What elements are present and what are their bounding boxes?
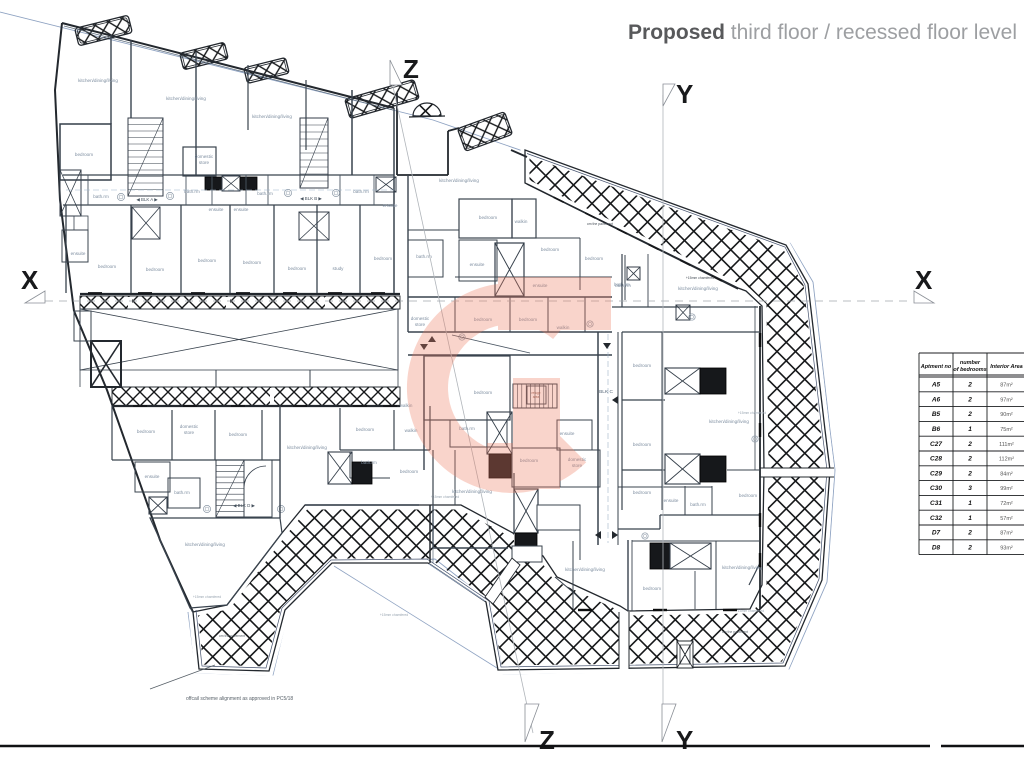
svg-text:B6: B6: [932, 426, 941, 433]
svg-text:D7: D7: [932, 530, 941, 537]
svg-text:C27: C27: [930, 441, 942, 448]
svg-text:bedroom: bedroom: [75, 152, 93, 157]
svg-text:store: store: [184, 430, 195, 435]
svg-text:112m²: 112m²: [999, 457, 1014, 463]
svg-text:ensuite: ensuite: [145, 474, 160, 479]
svg-text:bedroom: bedroom: [739, 493, 757, 498]
svg-text:bedroom: bedroom: [474, 390, 492, 395]
svg-text:bedroom: bedroom: [374, 256, 392, 261]
svg-text:bedroom: bedroom: [643, 586, 661, 591]
svg-text:bedroom: bedroom: [137, 429, 155, 434]
svg-text:bedroom: bedroom: [229, 432, 247, 437]
svg-text:bedroom: bedroom: [633, 363, 651, 368]
svg-text:75m²: 75m²: [1000, 427, 1013, 433]
svg-text:ensuite: ensuite: [470, 262, 485, 267]
svg-text:72m²: 72m²: [1000, 501, 1013, 507]
svg-text:2: 2: [967, 456, 972, 463]
svg-text:bedroom: bedroom: [288, 266, 306, 271]
svg-text:Z: Z: [539, 725, 555, 755]
svg-text:+15mm chamfered: +15mm chamfered: [686, 276, 714, 280]
svg-text:om the pavement: om the pavement: [722, 630, 748, 634]
svg-text:bedroom: bedroom: [98, 264, 116, 269]
svg-text:Proposed third floor / recesse: Proposed third floor / recessed floor le…: [628, 21, 1017, 44]
svg-text:kitchen/dining/living: kitchen/dining/living: [166, 96, 206, 101]
svg-text:store: store: [415, 322, 426, 327]
svg-text:bedroom: bedroom: [356, 427, 374, 432]
svg-text:number: number: [960, 360, 981, 366]
svg-text:kitchen/dining/living: kitchen/dining/living: [565, 567, 605, 572]
svg-text:kitchen/dining/living: kitchen/dining/living: [252, 114, 292, 119]
svg-text:bedroom: bedroom: [633, 490, 651, 495]
svg-text:om the pavement: om the pavement: [219, 634, 245, 638]
svg-text:84m²: 84m²: [1000, 471, 1013, 477]
svg-text:Y: Y: [676, 79, 693, 109]
svg-text:BLK C: BLK C: [599, 389, 613, 395]
svg-text:bedroom: bedroom: [633, 442, 651, 447]
svg-text:offcail scheme alignment as ap: offcail scheme alignment as approved in …: [186, 696, 293, 702]
svg-text:Y: Y: [676, 725, 693, 755]
svg-text:walkin: walkin: [515, 219, 528, 224]
svg-text:ensuite: ensuite: [560, 431, 575, 436]
svg-text:57m²: 57m²: [1000, 516, 1013, 522]
svg-text:111m²: 111m²: [999, 442, 1014, 448]
svg-text:2: 2: [967, 470, 972, 477]
svg-text:kitchen/dining/living: kitchen/dining/living: [185, 542, 225, 547]
svg-text:99m²: 99m²: [1000, 486, 1013, 492]
svg-text:bath.rm: bath.rm: [361, 460, 377, 465]
svg-text:87m²: 87m²: [1000, 383, 1013, 389]
svg-text:bedroom: bedroom: [146, 267, 164, 272]
svg-text:87m²: 87m²: [1000, 531, 1013, 537]
svg-text:domestic: domestic: [195, 154, 214, 159]
svg-text:90m²: 90m²: [1000, 412, 1013, 418]
svg-text:◀ BLK D ▶: ◀ BLK D ▶: [233, 503, 256, 508]
svg-text:bedroom: bedroom: [243, 260, 261, 265]
svg-text:domestic: domestic: [411, 316, 430, 321]
svg-text:C28: C28: [930, 456, 942, 463]
svg-text:om the pavement: om the pavement: [587, 222, 613, 226]
svg-text:bedroom: bedroom: [400, 469, 418, 474]
svg-text:X: X: [915, 265, 933, 295]
svg-text:1: 1: [968, 500, 972, 507]
svg-text:bath.rm: bath.rm: [174, 490, 190, 495]
svg-text:study: study: [333, 266, 345, 271]
svg-text:ensuite: ensuite: [234, 207, 249, 212]
svg-text:D8: D8: [932, 544, 941, 551]
svg-text:B5: B5: [932, 411, 941, 418]
svg-text:+15mm chamfered: +15mm chamfered: [193, 595, 221, 599]
svg-text:1: 1: [968, 515, 972, 522]
svg-text:kitchen/dining/living: kitchen/dining/living: [287, 445, 327, 450]
svg-text:2: 2: [967, 441, 972, 448]
svg-text:bedroom: bedroom: [479, 215, 497, 220]
svg-text:C31: C31: [930, 500, 942, 507]
svg-text:ensuite: ensuite: [71, 251, 86, 256]
svg-text:◀ BLK B ▶: ◀ BLK B ▶: [300, 196, 322, 201]
svg-text:domestic: domestic: [180, 424, 199, 429]
svg-text:A5: A5: [931, 382, 941, 389]
svg-text:3: 3: [968, 485, 972, 492]
svg-text:C29: C29: [930, 470, 942, 477]
svg-text:2: 2: [967, 544, 972, 551]
svg-text:bath.rm: bath.rm: [93, 194, 109, 199]
svg-text:bath.rm: bath.rm: [257, 191, 273, 196]
svg-text:bedroom: bedroom: [585, 256, 603, 261]
svg-text:bath.rm: bath.rm: [690, 502, 706, 507]
svg-text:store: store: [199, 160, 210, 165]
svg-text:+15mm chamfered: +15mm chamfered: [738, 411, 766, 415]
svg-text:of bedrooms: of bedrooms: [953, 367, 986, 373]
svg-text:C32: C32: [930, 515, 942, 522]
svg-text:2: 2: [967, 411, 972, 418]
svg-text:Z: Z: [403, 54, 419, 84]
svg-text:bedroom: bedroom: [198, 258, 216, 263]
svg-text:◀ BLK A ▶: ◀ BLK A ▶: [136, 197, 158, 202]
svg-text:kitchen/dining/living: kitchen/dining/living: [678, 286, 718, 291]
svg-text:kitchen/dining/living: kitchen/dining/living: [439, 178, 479, 183]
svg-text:X: X: [21, 265, 39, 295]
svg-text:2: 2: [967, 382, 972, 389]
svg-text:2: 2: [967, 396, 972, 403]
svg-text:bedroom: bedroom: [541, 247, 559, 252]
svg-text:ensuite: ensuite: [209, 207, 224, 212]
svg-text:97m²: 97m²: [1000, 397, 1013, 403]
svg-text:kitchen/dining/living: kitchen/dining/living: [78, 78, 118, 83]
svg-text:Aptment no: Aptment no: [920, 364, 952, 370]
svg-text:ensuite: ensuite: [664, 498, 679, 503]
svg-text:1: 1: [968, 426, 972, 433]
svg-text:+15mm chamfered: +15mm chamfered: [736, 609, 764, 613]
svg-text:+15mm chamfered: +15mm chamfered: [380, 613, 408, 617]
svg-text:C30: C30: [930, 485, 942, 492]
svg-text:kitchen/dining/living: kitchen/dining/living: [722, 565, 762, 570]
svg-text:kitchen/dining/living: kitchen/dining/living: [709, 419, 749, 424]
svg-text:ensuite: ensuite: [383, 203, 398, 208]
svg-text:93m²: 93m²: [1000, 545, 1013, 551]
svg-text:2: 2: [967, 530, 972, 537]
svg-text:Interior Area: Interior Area: [990, 364, 1023, 370]
svg-text:+15mm chamfered: +15mm chamfered: [431, 495, 459, 499]
svg-text:A6: A6: [931, 396, 941, 403]
